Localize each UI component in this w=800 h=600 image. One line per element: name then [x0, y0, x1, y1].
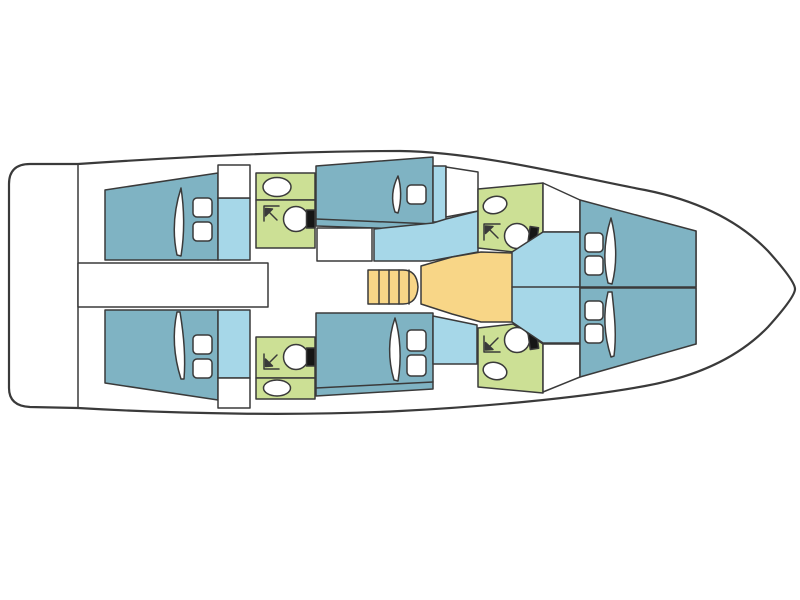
mid-bottom-hatch-cushion	[407, 355, 426, 376]
yacht-layout-plan	[0, 0, 800, 600]
mid-bottom-walkway	[433, 316, 477, 364]
sink-icon	[264, 380, 291, 396]
bow-top-hatch-cushion	[585, 256, 603, 275]
yacht-layout-canvas	[0, 0, 800, 600]
aft-bottom-hatch-cushion	[193, 359, 212, 378]
aft-top-hatch-cushion	[193, 222, 212, 241]
toilet-icon	[284, 207, 309, 232]
aft-bottom-deck-locker	[218, 378, 250, 408]
mid-top-walkway-strip	[433, 166, 446, 222]
aft-corridor	[78, 263, 268, 307]
aft-bottom-hatch-cushion	[193, 335, 212, 354]
toilet-icon	[284, 345, 309, 370]
mid-deck-box	[446, 167, 478, 217]
galley-area	[317, 228, 372, 261]
mid-top-hatch-cushion	[407, 185, 426, 204]
aft-bottom-entry-walkway	[218, 310, 250, 378]
aft-top-entry-walkway	[218, 198, 250, 260]
sink-icon	[263, 178, 291, 197]
bow-bottom-hatch-cushion	[585, 301, 603, 320]
toilet-tank-icon	[307, 210, 316, 228]
bow-bottom-hatch-cushion	[585, 324, 603, 343]
aft-top-hatch-cushion	[193, 198, 212, 217]
toilet-tank-icon	[307, 348, 316, 366]
aft-top-deck-locker	[218, 165, 250, 198]
companionway-stairs	[368, 270, 418, 304]
mid-bottom-hatch-cushion	[407, 330, 426, 351]
plan-root	[9, 151, 795, 414]
bow-top-hatch-cushion	[585, 233, 603, 252]
